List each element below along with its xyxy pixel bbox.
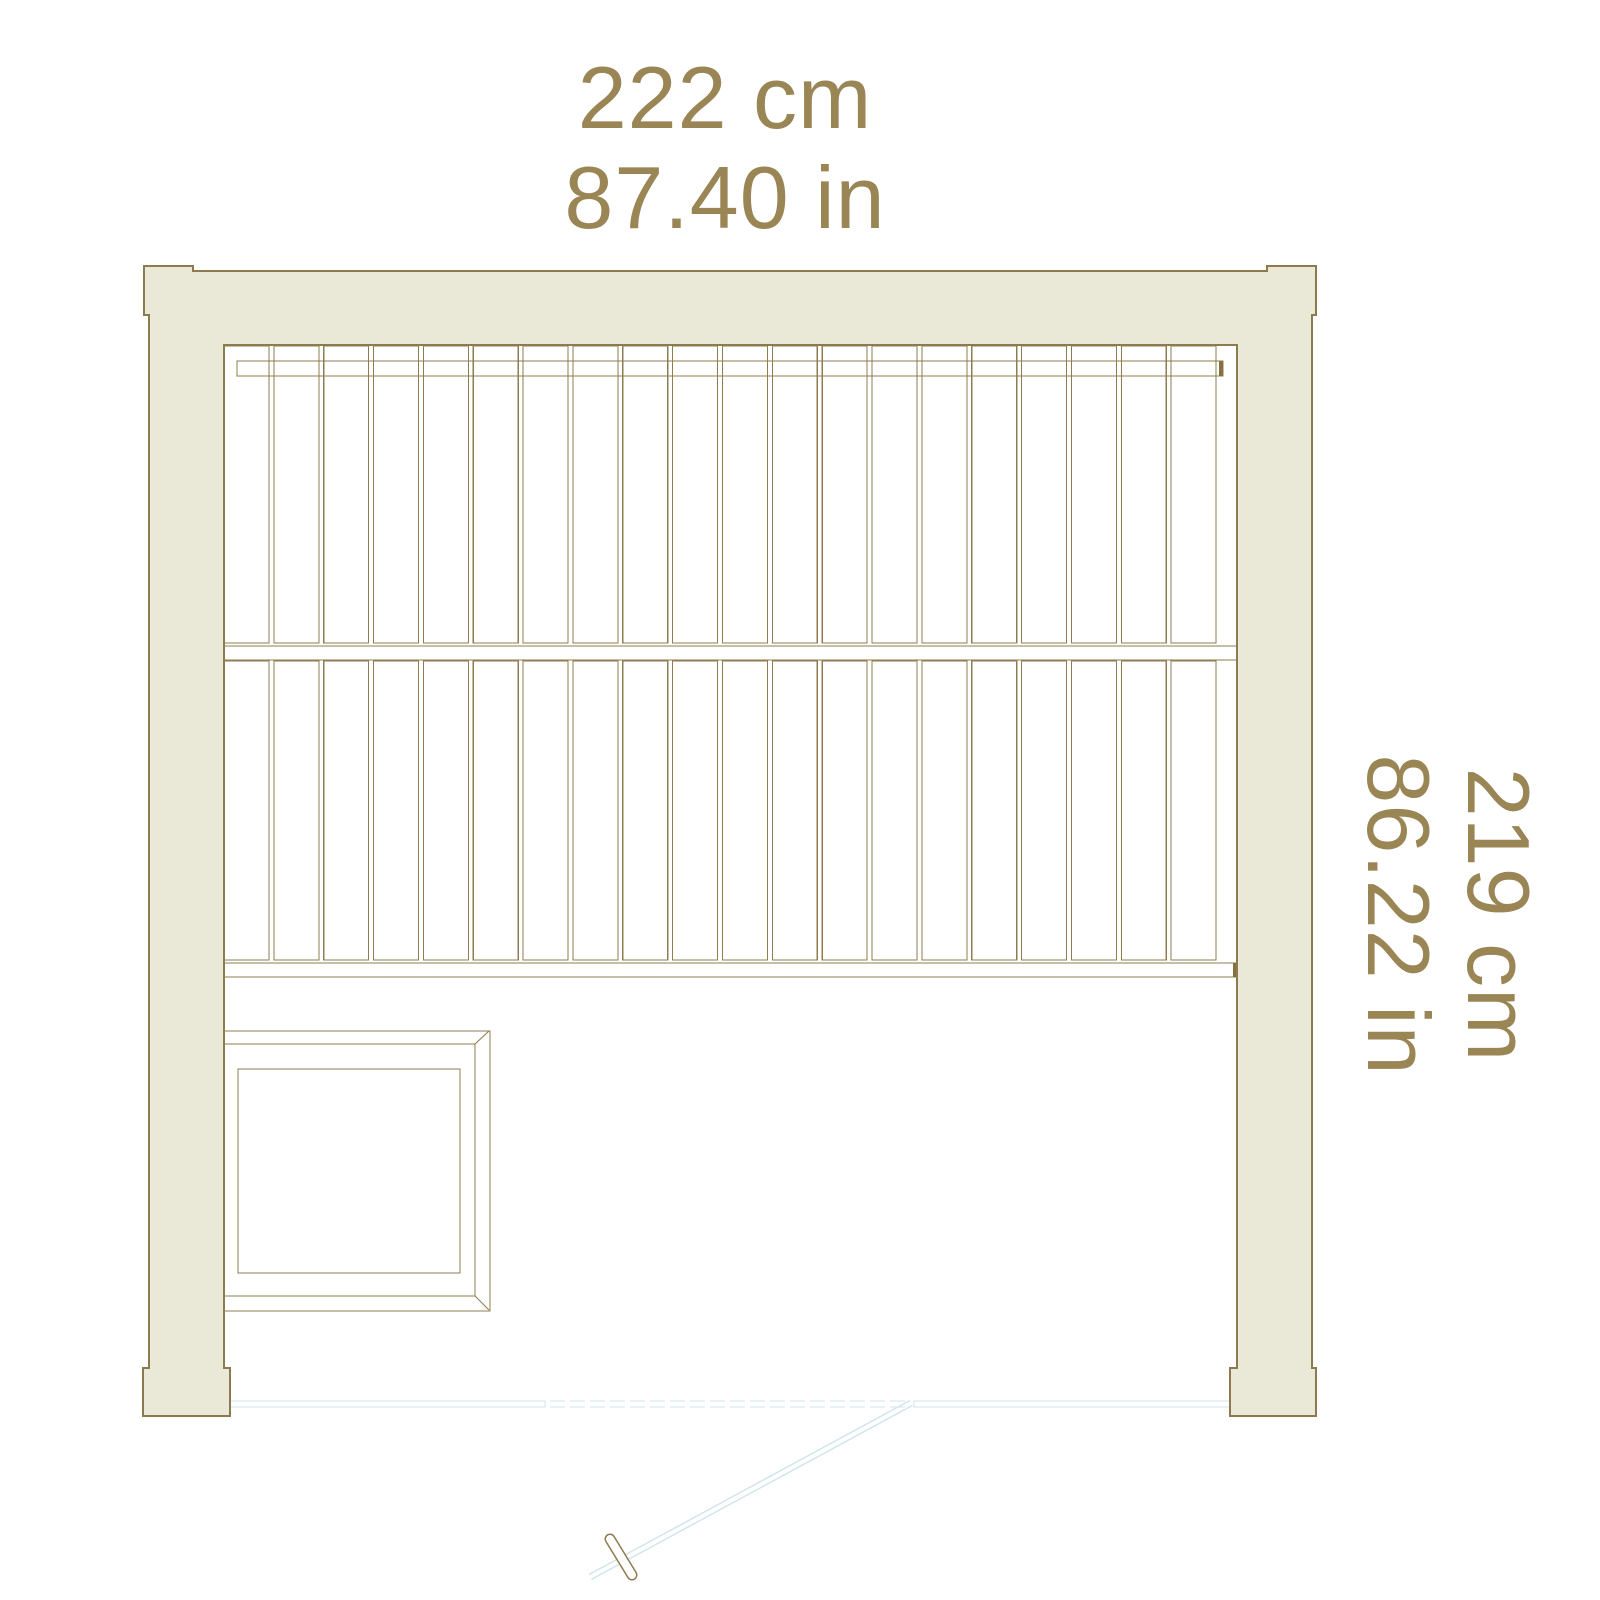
- bench-slat: [324, 346, 369, 643]
- door-threshold-right: [914, 1401, 1230, 1407]
- bench-slat: [1121, 661, 1166, 960]
- bench-slat: [673, 661, 718, 960]
- width-label-in: 87.40 in: [564, 148, 885, 247]
- bench-slat: [772, 661, 817, 960]
- bench-slat: [972, 661, 1017, 960]
- floor-plan-canvas: 222 cm 87.40 in 219 cm 86.22 in: [0, 0, 1600, 1600]
- bench-slat: [324, 661, 369, 960]
- bench-slat: [623, 346, 668, 643]
- bench-slat: [1171, 346, 1216, 643]
- bench-slat: [573, 661, 618, 960]
- bench-slat: [374, 661, 419, 960]
- depth-dimension-label: 219 cm 86.22 in: [1349, 754, 1548, 1075]
- bench-slat: [274, 661, 319, 960]
- bench-slat: [1121, 346, 1166, 643]
- bench-slat: [274, 346, 319, 643]
- door-assembly: [230, 1401, 1230, 1580]
- bench-rail-end-cap: [1219, 361, 1223, 376]
- bench-slat: [224, 661, 269, 960]
- bench-slat: [822, 661, 867, 960]
- bench-slat: [423, 346, 468, 643]
- bench-slat: [772, 346, 817, 643]
- bench-slat: [1171, 661, 1216, 960]
- bench-slat: [623, 661, 668, 960]
- bench-slat: [922, 346, 967, 643]
- bench-slat: [922, 661, 967, 960]
- bench-front-edge-mid: [224, 646, 1237, 660]
- bench-front-edge-bottom: [224, 963, 1237, 977]
- bench-slat: [573, 346, 618, 643]
- bench-slat: [523, 661, 568, 960]
- heater-mid: [223, 1044, 475, 1296]
- door-leaf-line-2: [591, 1405, 912, 1579]
- upper-bench-slats: [224, 346, 1216, 643]
- bench-slat: [1071, 346, 1116, 643]
- door-leaf-line-1: [589, 1401, 910, 1575]
- door-threshold-left: [230, 1401, 545, 1407]
- bench-slat: [872, 346, 917, 643]
- depth-label-cm: 219 cm: [1449, 768, 1548, 1063]
- width-label-cm: 222 cm: [578, 48, 873, 147]
- heater-box: [223, 1031, 490, 1311]
- bench-slat: [723, 346, 768, 643]
- bench-slat: [822, 346, 867, 643]
- bench-slat: [1022, 346, 1067, 643]
- bench-slat: [1071, 661, 1116, 960]
- bench-slat: [473, 661, 518, 960]
- bench-slat: [1022, 661, 1067, 960]
- bench-slat: [224, 346, 269, 643]
- bench-slat: [872, 661, 917, 960]
- bench-slat: [723, 661, 768, 960]
- depth-label-in: 86.22 in: [1349, 754, 1448, 1075]
- bench-slat: [374, 346, 419, 643]
- bench-slat: [423, 661, 468, 960]
- lower-bench-slats: [224, 661, 1216, 960]
- width-dimension-label: 222 cm 87.40 in: [564, 48, 885, 247]
- bench-slat: [473, 346, 518, 643]
- bench-slat: [673, 346, 718, 643]
- bench-slat: [972, 346, 1017, 643]
- bench-slat: [523, 346, 568, 643]
- door-handle-fill: [610, 1539, 632, 1575]
